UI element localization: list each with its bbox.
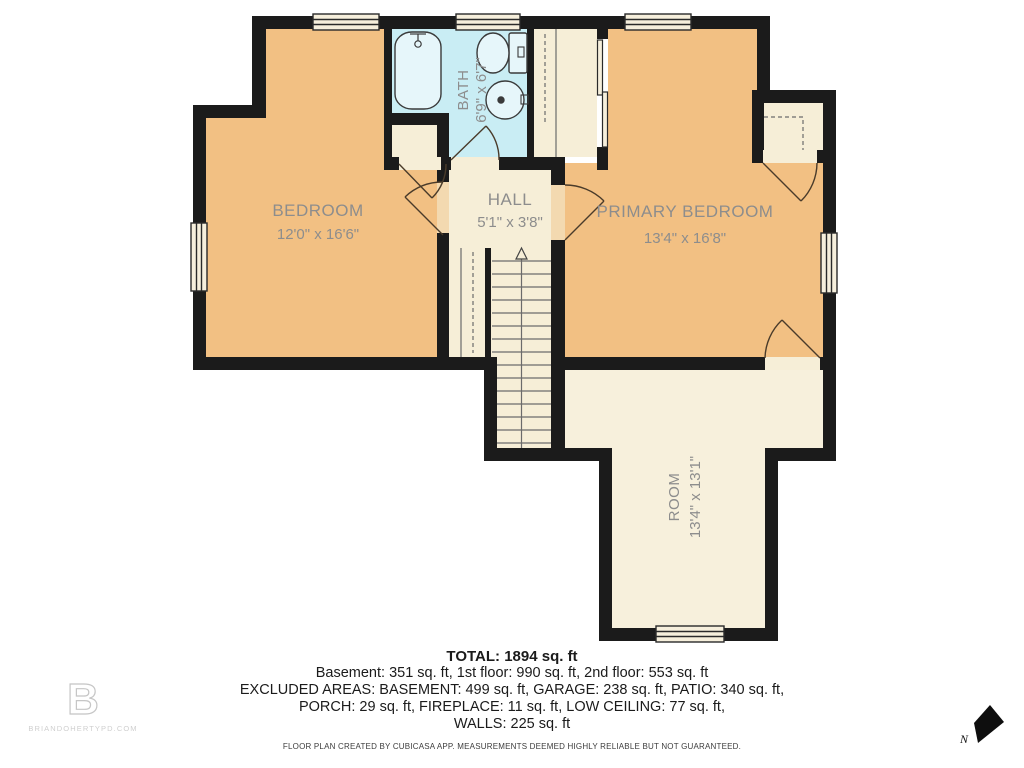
primary-top-window [625, 14, 691, 30]
north-label: N [960, 732, 968, 747]
bedroom-top-window [313, 14, 379, 30]
primary-closet-floor [764, 103, 823, 150]
logo-letter: B [18, 678, 148, 722]
room-dims: 13'4" x 13'1" [687, 456, 704, 538]
floor-areas: Basement: 351 sq. ft, 1st floor: 990 sq.… [0, 665, 1024, 682]
logo-website: BRIANDOHERTYPD.COM [18, 724, 148, 733]
primary-right-window [821, 233, 837, 293]
bedroom-label: BEDROOM [272, 201, 363, 220]
bath-top-window [456, 14, 520, 30]
primary-bedroom-floor [565, 29, 823, 357]
area-summary: TOTAL: 1894 sq. ft Basement: 351 sq. ft,… [0, 648, 1024, 751]
compass: N [948, 682, 1018, 758]
bedroom-closet-floor [392, 125, 441, 157]
hall-label: HALL [488, 190, 533, 209]
linen-closet-floor [533, 29, 597, 157]
total-area: TOTAL: 1894 sq. ft [0, 648, 1024, 665]
bedroom-dims: 12'0" x 16'6" [277, 226, 359, 243]
floorplan-drawing: BEDROOM 12'0" x 16'6" PRIMARY BEDROOM 13… [0, 0, 1024, 660]
bath-label: BATH [455, 70, 472, 111]
bath-dims: 6'9" x 6'7" [473, 57, 490, 123]
bedroom-left-window [191, 223, 207, 291]
excluded-areas-3: WALLS: 225 sq. ft [0, 716, 1024, 733]
branding-logo: B BRIANDOHERTYPD.COM [18, 678, 148, 733]
north-arrow-icon [948, 682, 1018, 758]
excluded-areas-2: PORCH: 29 sq. ft, FIREPLACE: 11 sq. ft, … [0, 699, 1024, 716]
primary-bedroom-label: PRIMARY BEDROOM [597, 202, 774, 221]
floorplan-page: { "rooms": { "bedroom": {"name": "BEDROO… [0, 0, 1024, 768]
room-bottom-window [656, 626, 724, 642]
primary-bedroom-dims: 13'4" x 16'8" [644, 230, 726, 247]
floors [206, 29, 823, 628]
disclaimer-text: FLOOR PLAN CREATED BY CUBICASA APP. MEAS… [0, 742, 1024, 751]
stair-closet-floor [449, 248, 485, 357]
room-label: ROOM [666, 473, 683, 522]
sliding-door [598, 40, 608, 147]
excluded-areas-1: EXCLUDED AREAS: BASEMENT: 499 sq. ft, GA… [0, 682, 1024, 699]
hall-dims: 5'1" x 3'8" [477, 214, 543, 231]
